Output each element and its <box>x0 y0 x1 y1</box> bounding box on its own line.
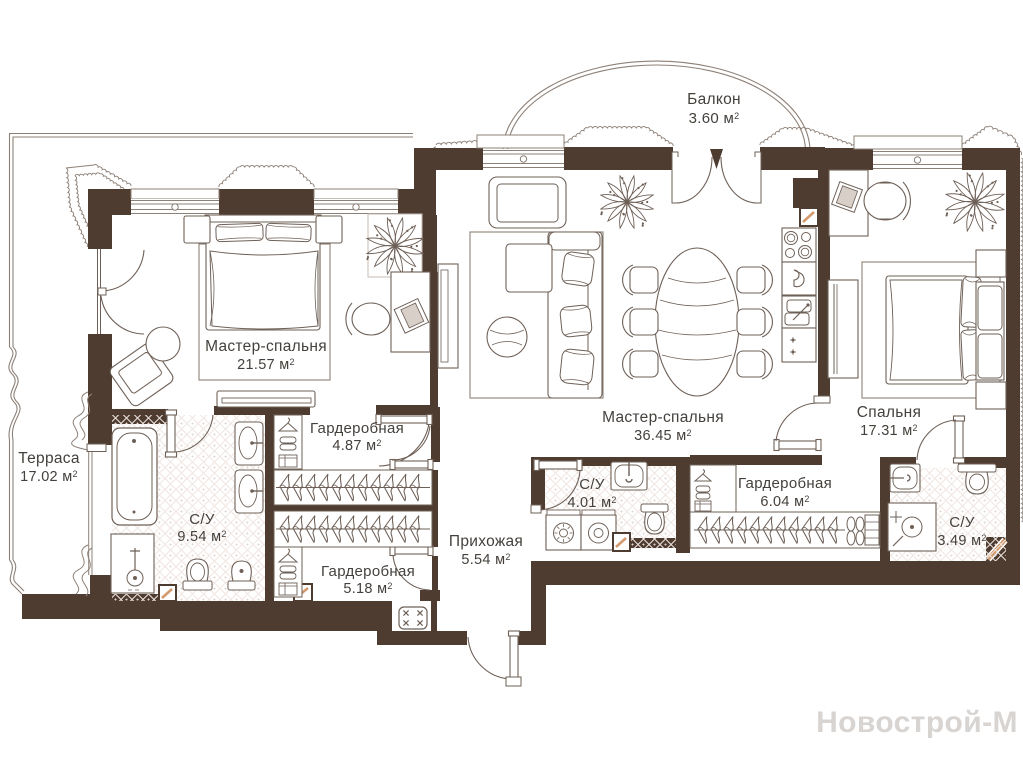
svg-text:3.49 м2: 3.49 м2 <box>937 533 986 549</box>
svg-text:6.04 м2: 6.04 м2 <box>760 494 809 510</box>
svg-text:Балкон: Балкон <box>687 91 741 108</box>
svg-text:5.18 м2: 5.18 м2 <box>343 581 392 597</box>
svg-text:17.02 м2: 17.02 м2 <box>20 469 78 485</box>
svg-text:Прихожая: Прихожая <box>449 533 523 550</box>
svg-text:С/У: С/У <box>949 514 975 531</box>
svg-text:17.31 м2: 17.31 м2 <box>860 423 918 439</box>
svg-text:Гардеробная: Гардеробная <box>310 420 404 437</box>
svg-text:4.87 м2: 4.87 м2 <box>332 438 381 454</box>
svg-text:Мастер-спальня: Мастер-спальня <box>205 338 327 355</box>
svg-text:21.57 м2: 21.57 м2 <box>237 357 295 373</box>
svg-text:36.45 м2: 36.45 м2 <box>634 428 692 444</box>
svg-text:4.01 м2: 4.01 м2 <box>567 495 616 511</box>
svg-text:Гардеробная: Гардеробная <box>738 475 832 492</box>
svg-text:Терраса: Терраса <box>18 450 80 467</box>
svg-text:Спальня: Спальня <box>857 404 921 421</box>
svg-text:С/У: С/У <box>579 476 605 493</box>
svg-text:Гардеробная: Гардеробная <box>321 563 415 580</box>
svg-text:Мастер-спальня: Мастер-спальня <box>602 409 724 426</box>
svg-text:С/У: С/У <box>189 511 215 528</box>
svg-text:5.54 м2: 5.54 м2 <box>461 552 510 568</box>
svg-text:9.54 м2: 9.54 м2 <box>177 529 226 545</box>
svg-text:Новострой-М: Новострой-М <box>816 706 1018 739</box>
svg-text:3.60 м2: 3.60 м2 <box>689 110 740 127</box>
